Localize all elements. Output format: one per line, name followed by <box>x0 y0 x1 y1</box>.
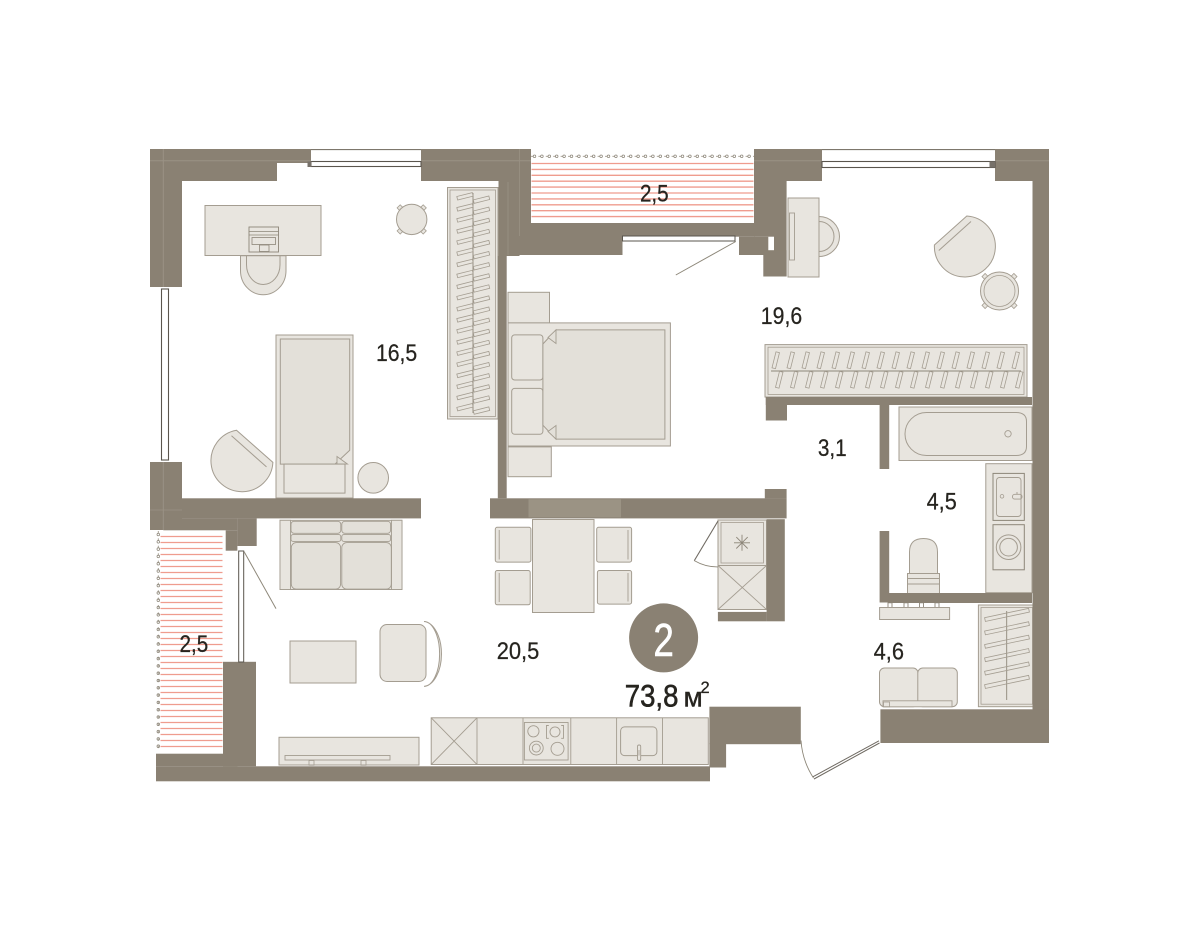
svg-text:73,8: 73,8 <box>625 679 679 714</box>
svg-text:16,5: 16,5 <box>376 340 417 367</box>
svg-text:2: 2 <box>653 614 674 666</box>
svg-text:20,5: 20,5 <box>497 638 540 665</box>
svg-text:4,6: 4,6 <box>874 639 904 666</box>
svg-text:19,6: 19,6 <box>761 303 802 330</box>
svg-text:3,1: 3,1 <box>818 435 847 462</box>
svg-text:4,5: 4,5 <box>927 489 957 516</box>
svg-text:2,5: 2,5 <box>640 180 669 207</box>
svg-text:2,5: 2,5 <box>180 631 209 658</box>
svg-text:2: 2 <box>701 679 710 697</box>
